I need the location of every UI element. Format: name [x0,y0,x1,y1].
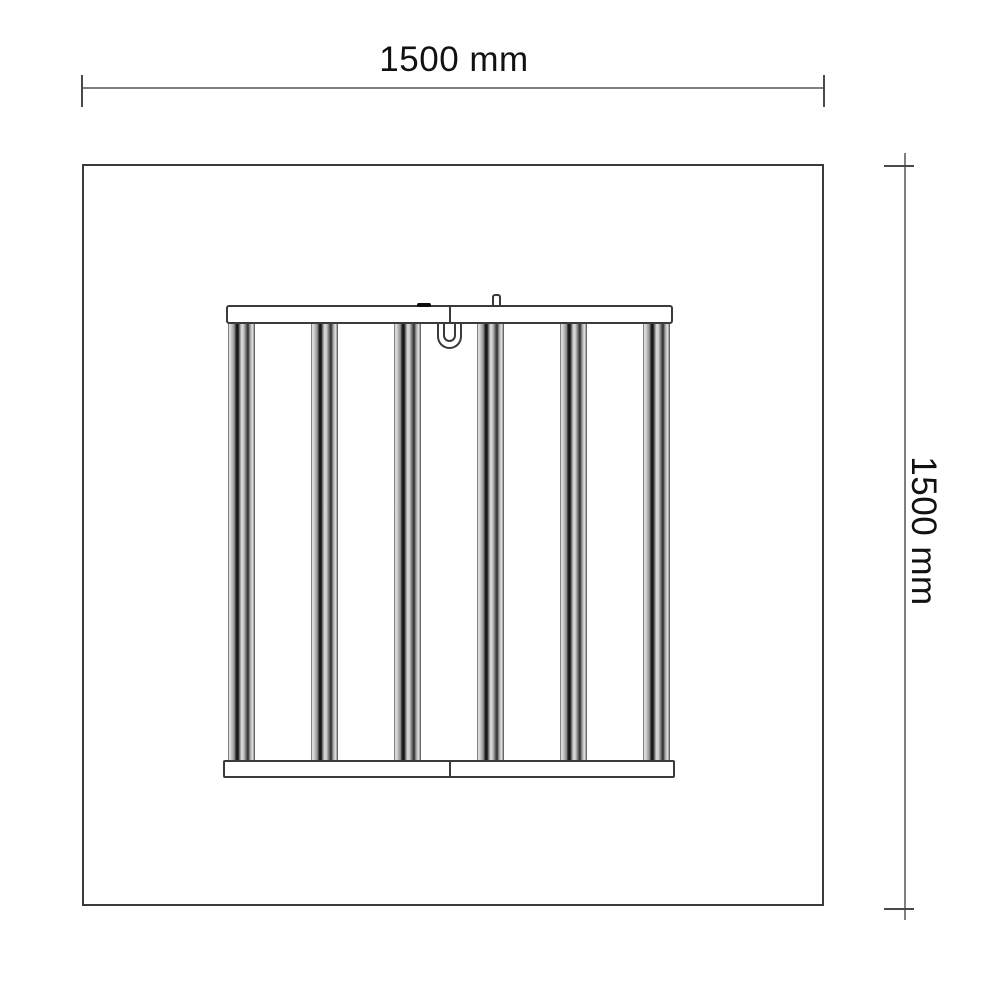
width-dimension-line [82,87,824,89]
rail-dash-marker [417,303,431,307]
bottom-rail-seam [449,762,451,776]
top-rail-seam [449,307,451,322]
fixture-top-rail [226,305,673,324]
light-bar [560,324,587,761]
hanging-eyelet [437,322,462,349]
dimension-drawing: 1500 mm 1500 mm [0,0,1000,1000]
height-dimension-line [904,153,906,920]
light-bar [311,324,338,761]
light-bar [394,324,421,761]
hanging-eyelet-slot [443,322,456,342]
width-dimension-tick-right [823,75,825,107]
fixture-bottom-rail [223,760,675,778]
height-dimension-tick-bottom [884,908,914,910]
light-bar [228,324,255,761]
light-bar [643,324,670,761]
height-dimension-label: 1500 mm [903,456,943,605]
width-dimension-label: 1500 mm [379,40,528,80]
height-dimension-tick-top [884,165,914,167]
width-dimension-tick-left [81,75,83,107]
coverage-area-outline [82,164,824,906]
light-bar [477,324,504,761]
